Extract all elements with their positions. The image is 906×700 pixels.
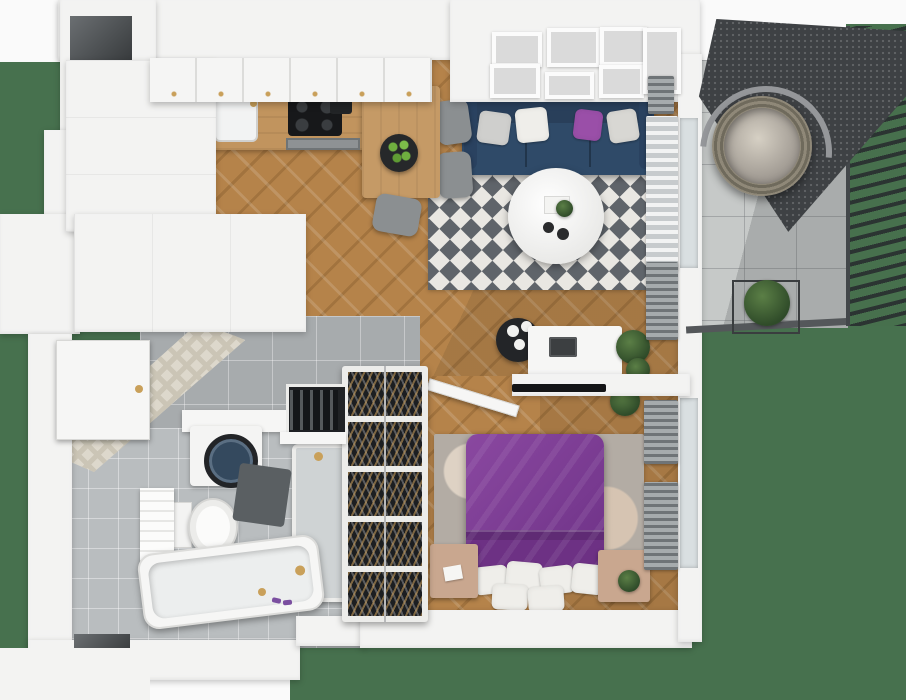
radiator (644, 400, 678, 464)
gallery-frame (490, 64, 540, 98)
radiator (646, 262, 678, 340)
oven-front (286, 138, 360, 150)
coffee-table-plant (556, 200, 573, 217)
laptop (549, 337, 577, 357)
sofa-pillow-gray (476, 110, 512, 146)
fruit-bowl (380, 134, 418, 172)
radiator (648, 76, 674, 114)
nightstand-plant (618, 570, 640, 592)
kitchen-upper-cabinets (150, 58, 432, 102)
small-bottle-rack-bottles (290, 390, 338, 430)
coffee-table-cup (543, 222, 554, 233)
bathtub-basin (147, 544, 315, 619)
apartment-floor-plan (0, 0, 906, 700)
radiator (644, 482, 678, 570)
sofa-pillow-purple (572, 108, 603, 141)
lawn-right (688, 328, 906, 700)
bed-pillow (491, 583, 528, 611)
wardrobe (74, 214, 306, 332)
gallery-frame (545, 72, 594, 99)
bed (466, 434, 604, 568)
bedroom-window-glass (680, 398, 698, 568)
gallery-frame (600, 27, 647, 66)
gallery-frame (547, 28, 600, 67)
dining-chair (371, 192, 423, 237)
bottom-left-corner (0, 648, 150, 700)
rack-shelf-board (280, 432, 346, 444)
dining-chair (436, 151, 473, 199)
coffee-table-cup (557, 228, 569, 240)
window-radiator (646, 116, 678, 270)
slipper (283, 600, 292, 606)
coffee-table (508, 168, 604, 264)
balcony-shrub (744, 280, 790, 326)
wine-rack-pole (384, 366, 386, 622)
hand-shower (258, 588, 266, 596)
balcony-door-glass (680, 118, 698, 268)
wine-rack (342, 366, 428, 622)
hanging-egg-chair (712, 96, 812, 196)
sphere-lamp (514, 339, 525, 350)
shower-head (314, 452, 323, 461)
sphere-lamp (507, 325, 519, 337)
sofa-pillow-silver (606, 108, 641, 144)
left-wall-block (0, 214, 80, 334)
bed-pillow (527, 585, 565, 613)
gallery-frame (599, 65, 644, 98)
entrance-door (56, 340, 150, 440)
bath-mat (232, 463, 292, 528)
gallery-frame (492, 32, 542, 67)
sofa-pillow-white (514, 106, 549, 143)
hanging-chair-cushion (724, 108, 800, 184)
entrance-door-knob (135, 385, 143, 393)
tv (512, 384, 606, 392)
